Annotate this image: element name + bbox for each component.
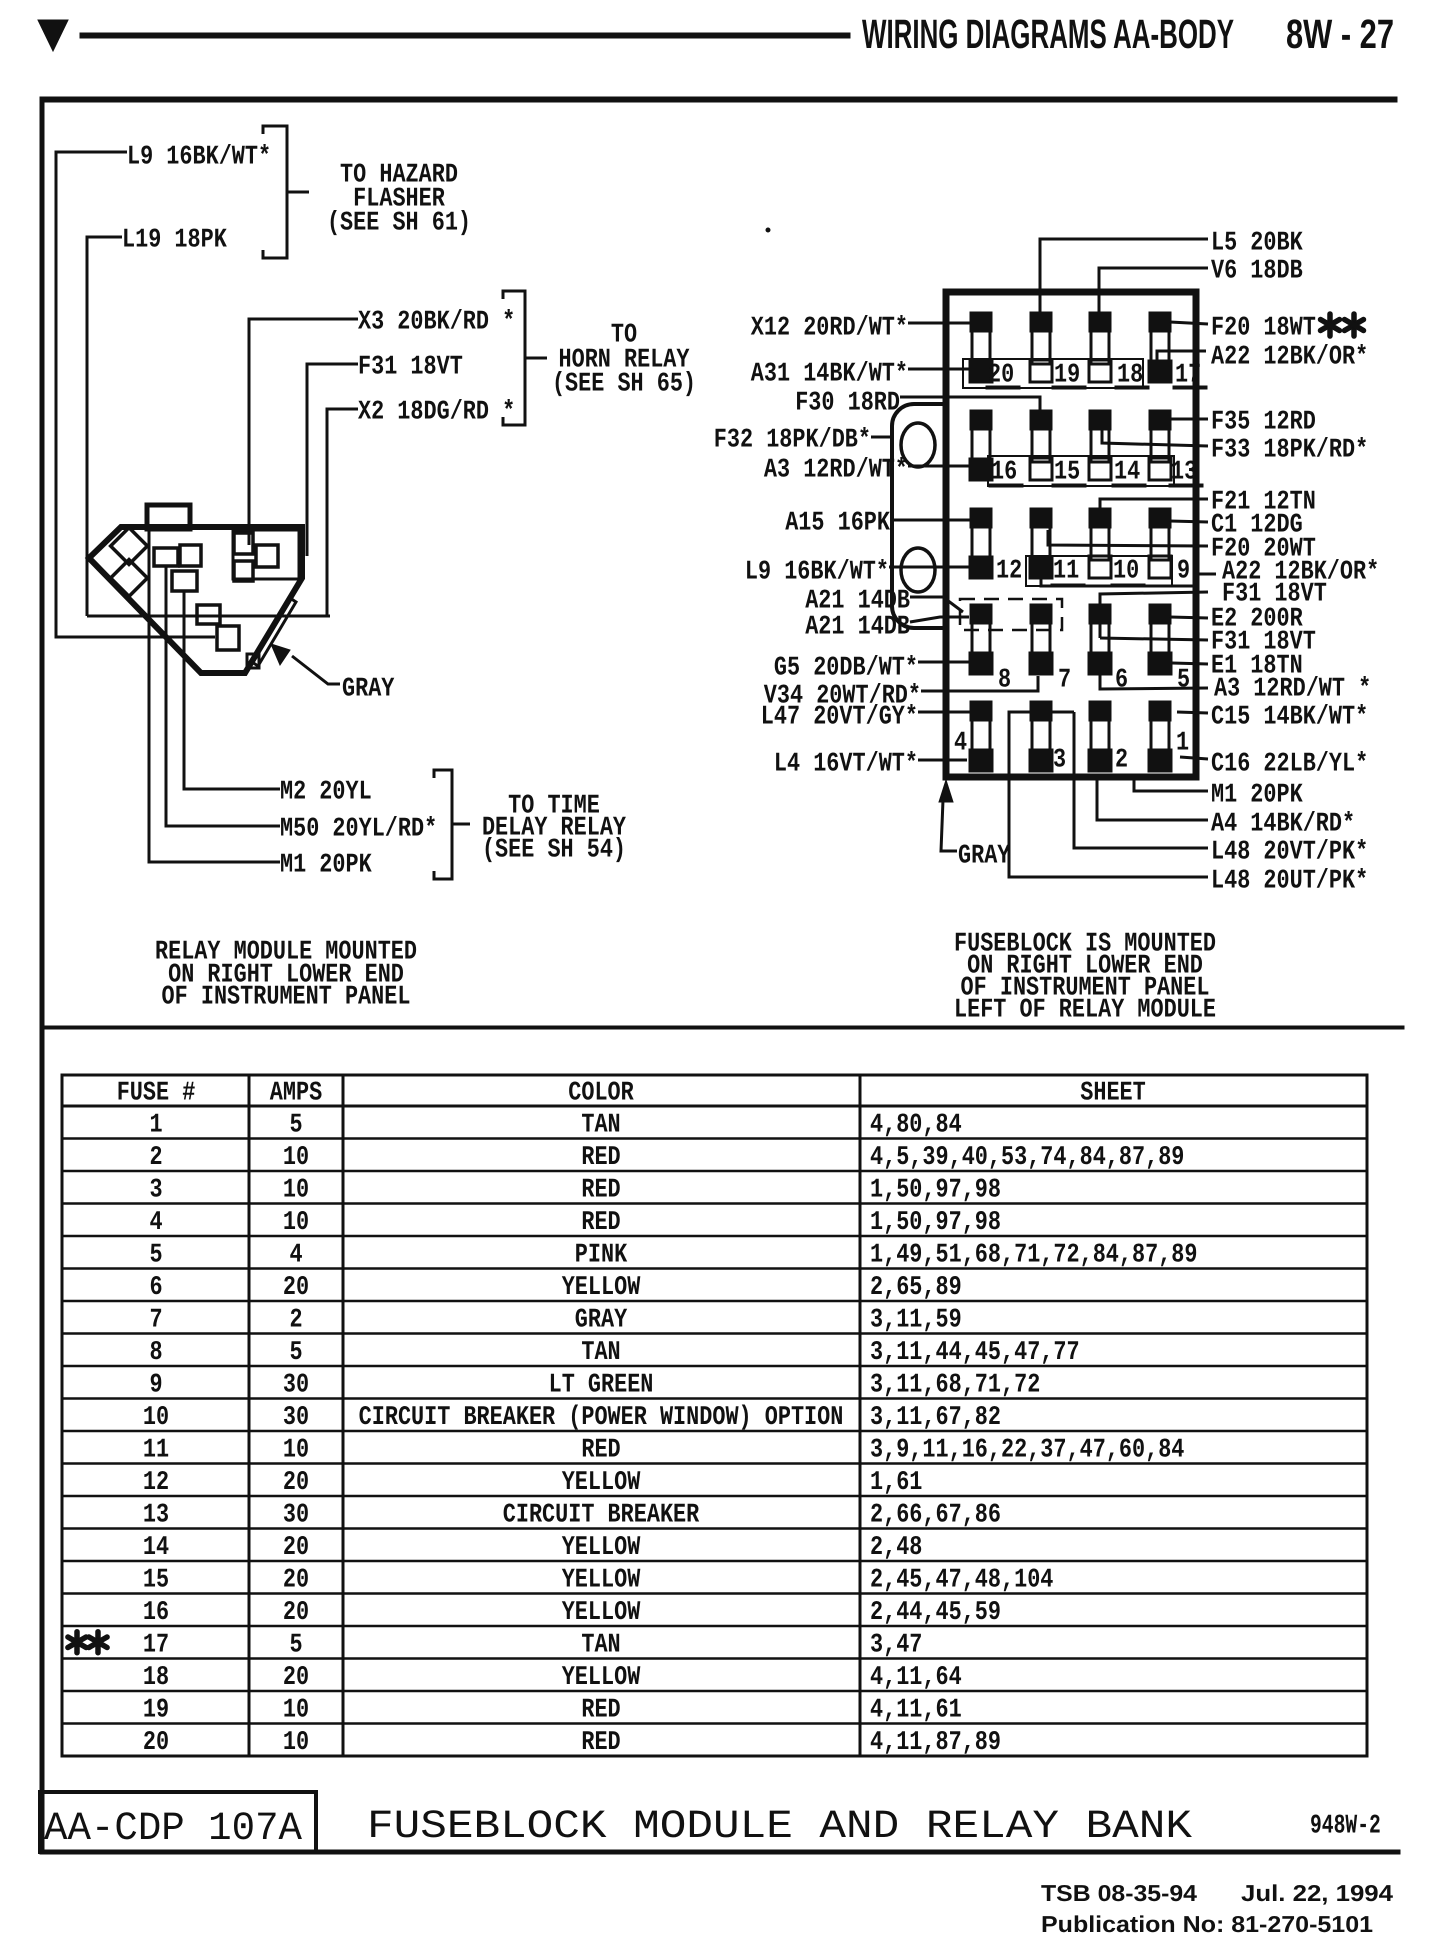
svg-text:RED: RED [581, 1143, 620, 1173]
svg-text:X12 20RD/WT*: X12 20RD/WT* [751, 313, 908, 343]
svg-text:6: 6 [149, 1273, 162, 1303]
svg-text:3,47: 3,47 [870, 1631, 922, 1661]
svg-text:3,11,68,71,72: 3,11,68,71,72 [870, 1371, 1040, 1401]
svg-text:6: 6 [1115, 665, 1128, 695]
svg-text:CIRCUIT BREAKER: CIRCUIT BREAKER [503, 1501, 700, 1531]
svg-text:10: 10 [1113, 556, 1139, 586]
svg-text:1,50,97,98: 1,50,97,98 [870, 1176, 1001, 1206]
svg-text:9: 9 [1177, 556, 1190, 586]
svg-text:1,61: 1,61 [870, 1468, 922, 1498]
svg-text:20: 20 [283, 1566, 309, 1596]
svg-text:13: 13 [143, 1501, 169, 1531]
svg-text:2: 2 [149, 1143, 162, 1173]
svg-text:F30 18RD: F30 18RD [795, 388, 900, 418]
svg-text:RED: RED [581, 1208, 620, 1238]
svg-text:2,48: 2,48 [870, 1533, 922, 1563]
svg-text:(SEE SH 65): (SEE SH 65) [552, 369, 696, 399]
svg-text:1: 1 [1176, 728, 1189, 758]
svg-text:M1 20PK: M1 20PK [280, 850, 372, 880]
svg-text:L48 20VT/PK*: L48 20VT/PK* [1211, 837, 1368, 867]
svg-text:10: 10 [283, 1436, 309, 1466]
svg-text:F31 18VT: F31 18VT [358, 352, 463, 382]
svg-text:Jul. 22, 1994: Jul. 22, 1994 [1241, 1880, 1393, 1906]
svg-text:YELLOW: YELLOW [562, 1566, 641, 1596]
svg-text:YELLOW: YELLOW [562, 1663, 641, 1693]
svg-text:A3 12RD/WT*: A3 12RD/WT* [764, 455, 908, 485]
svg-text:YELLOW: YELLOW [562, 1598, 641, 1628]
svg-text:L19 18PK: L19 18PK [122, 225, 227, 255]
svg-text:A21 14DB: A21 14DB [805, 612, 910, 642]
svg-text:4: 4 [954, 728, 967, 758]
svg-text:10: 10 [283, 1208, 309, 1238]
svg-text:10: 10 [283, 1728, 309, 1758]
svg-text:M50 20YL/RD*: M50 20YL/RD* [280, 814, 437, 844]
svg-text:L4 16VT/WT*: L4 16VT/WT* [774, 749, 918, 779]
svg-text:20: 20 [283, 1533, 309, 1563]
svg-text:Publication No: 81-270-5101: Publication No: 81-270-5101 [1041, 1911, 1373, 1937]
svg-text:YELLOW: YELLOW [562, 1273, 641, 1303]
svg-text:TAN: TAN [581, 1111, 620, 1141]
svg-text:FUSEBLOCK MODULE AND RELAY BAN: FUSEBLOCK MODULE AND RELAY BANK [367, 1805, 1192, 1850]
svg-text:1,49,51,68,71,72,84,87,89: 1,49,51,68,71,72,84,87,89 [870, 1241, 1198, 1271]
svg-text:17: 17 [143, 1631, 169, 1661]
svg-text:10: 10 [283, 1696, 309, 1726]
svg-text:5: 5 [149, 1241, 162, 1271]
svg-text:3,11,59: 3,11,59 [870, 1306, 962, 1336]
svg-text:L48 20UT/PK*: L48 20UT/PK* [1211, 866, 1368, 896]
svg-text:12: 12 [996, 556, 1022, 586]
svg-text:14: 14 [1114, 457, 1140, 487]
svg-text:4: 4 [289, 1241, 302, 1271]
svg-text:A15 16PK: A15 16PK [785, 508, 890, 538]
svg-text:9: 9 [149, 1371, 162, 1401]
svg-text:5: 5 [1177, 665, 1190, 695]
svg-text:8: 8 [149, 1338, 162, 1368]
svg-text:L9 16BK/WT*: L9 16BK/WT* [745, 557, 889, 587]
svg-text:GRAY: GRAY [342, 674, 395, 704]
svg-text:(SEE SH 54): (SEE SH 54) [482, 835, 626, 865]
svg-text:8W - 27: 8W - 27 [1286, 11, 1394, 57]
svg-text:2,65,89: 2,65,89 [870, 1273, 962, 1303]
svg-text:10: 10 [283, 1143, 309, 1173]
svg-text:19: 19 [143, 1696, 169, 1726]
svg-text:OF INSTRUMENT PANEL: OF INSTRUMENT PANEL [162, 982, 411, 1012]
svg-text:10: 10 [143, 1403, 169, 1433]
svg-text:L47 20VT/GY*: L47 20VT/GY* [761, 702, 918, 732]
svg-text:16: 16 [991, 457, 1017, 487]
svg-text:30: 30 [283, 1371, 309, 1401]
svg-text:12: 12 [143, 1468, 169, 1498]
svg-text:V6 18DB: V6 18DB [1211, 256, 1303, 286]
svg-text:F33 18PK/RD*: F33 18PK/RD* [1211, 435, 1368, 465]
svg-text:YELLOW: YELLOW [562, 1468, 641, 1498]
svg-text:A4 14BK/RD*: A4 14BK/RD* [1211, 809, 1355, 839]
svg-text:A31 14BK/WT*: A31 14BK/WT* [751, 359, 908, 389]
svg-text:F35 12RD: F35 12RD [1211, 407, 1316, 437]
svg-text:15: 15 [1054, 457, 1080, 487]
svg-text:A3 12RD/WT *: A3 12RD/WT * [1214, 674, 1371, 704]
svg-text:WIRING DIAGRAMS AA-BODY: WIRING DIAGRAMS AA-BODY [862, 11, 1234, 57]
svg-text:4,11,87,89: 4,11,87,89 [870, 1728, 1001, 1758]
svg-text:RED: RED [581, 1696, 620, 1726]
svg-text:1: 1 [149, 1111, 162, 1141]
svg-text:L9 16BK/WT*: L9 16BK/WT* [127, 142, 271, 172]
svg-text:1,50,97,98: 1,50,97,98 [870, 1208, 1001, 1238]
svg-text:A22 12BK/OR*: A22 12BK/OR* [1211, 342, 1368, 372]
svg-text:GRAY: GRAY [958, 841, 1011, 871]
svg-text:3,11,44,45,47,77: 3,11,44,45,47,77 [870, 1338, 1080, 1368]
svg-text:2: 2 [289, 1306, 302, 1336]
svg-text:20: 20 [143, 1728, 169, 1758]
svg-text:L5 20BK: L5 20BK [1211, 228, 1303, 258]
svg-text:FUSE #: FUSE # [117, 1078, 196, 1108]
svg-text:16: 16 [143, 1598, 169, 1628]
svg-text:30: 30 [283, 1403, 309, 1433]
svg-text:CIRCUIT BREAKER (POWER WINDOW): CIRCUIT BREAKER (POWER WINDOW) OPTION [359, 1403, 844, 1433]
svg-text:5: 5 [289, 1338, 302, 1368]
svg-text:20: 20 [283, 1663, 309, 1693]
svg-text:SHEET: SHEET [1080, 1078, 1146, 1108]
svg-text:C15 14BK/WT*: C15 14BK/WT* [1211, 702, 1368, 732]
svg-text:4,11,64: 4,11,64 [870, 1663, 962, 1693]
svg-text:3,11,67,82: 3,11,67,82 [870, 1403, 1001, 1433]
svg-text:30: 30 [283, 1501, 309, 1531]
svg-text:X3 20BK/RD *: X3 20BK/RD * [358, 307, 515, 337]
svg-text:F20 18WT: F20 18WT [1211, 313, 1316, 343]
svg-text:TAN: TAN [581, 1631, 620, 1661]
svg-text:5: 5 [289, 1111, 302, 1141]
svg-text:M1 20PK: M1 20PK [1211, 780, 1303, 810]
svg-text:PINK: PINK [575, 1241, 628, 1271]
svg-text:M2 20YL: M2 20YL [280, 777, 372, 807]
svg-text:X2 18DG/RD *: X2 18DG/RD * [358, 397, 515, 427]
svg-text:4,11,61: 4,11,61 [870, 1696, 962, 1726]
svg-text:2,44,45,59: 2,44,45,59 [870, 1598, 1001, 1628]
svg-text:AA-CDP 107A: AA-CDP 107A [44, 1807, 302, 1852]
svg-text:11: 11 [1053, 556, 1079, 586]
svg-text:3: 3 [1053, 745, 1066, 775]
svg-text:RED: RED [581, 1728, 620, 1758]
svg-text:2: 2 [1115, 745, 1128, 775]
svg-text:11: 11 [143, 1436, 169, 1466]
svg-text:RED: RED [581, 1176, 620, 1206]
svg-text:TAN: TAN [581, 1338, 620, 1368]
svg-text:C16 22LB/YL*: C16 22LB/YL* [1211, 749, 1368, 779]
svg-text:20: 20 [283, 1598, 309, 1628]
svg-text:20: 20 [283, 1468, 309, 1498]
svg-text:14: 14 [143, 1533, 169, 1563]
svg-text:TSB 08-35-94: TSB 08-35-94 [1041, 1880, 1197, 1906]
svg-text:5: 5 [289, 1631, 302, 1661]
svg-text:10: 10 [283, 1176, 309, 1206]
svg-text:3,9,11,16,22,37,47,60,84: 3,9,11,16,22,37,47,60,84 [870, 1436, 1184, 1466]
svg-text:2,66,67,86: 2,66,67,86 [870, 1501, 1001, 1531]
svg-text:20: 20 [283, 1273, 309, 1303]
svg-text:7: 7 [1058, 665, 1071, 695]
svg-text:AMPS: AMPS [270, 1078, 322, 1108]
svg-text:GRAY: GRAY [575, 1306, 628, 1336]
svg-text:4,80,84: 4,80,84 [870, 1111, 962, 1141]
svg-text:13: 13 [1171, 457, 1197, 487]
svg-text:3: 3 [149, 1176, 162, 1206]
svg-text:4,5,39,40,53,74,84,87,89: 4,5,39,40,53,74,84,87,89 [870, 1143, 1184, 1173]
svg-text:15: 15 [143, 1566, 169, 1596]
svg-text:7: 7 [149, 1306, 162, 1336]
svg-text:948W-2: 948W-2 [1310, 1811, 1381, 1841]
svg-text:G5 20DB/WT*: G5 20DB/WT* [774, 653, 918, 683]
svg-text:4: 4 [149, 1208, 162, 1238]
svg-text:F32 18PK/DB*: F32 18PK/DB* [714, 425, 871, 455]
svg-text:2,45,47,48,104: 2,45,47,48,104 [870, 1566, 1053, 1596]
svg-text:18: 18 [143, 1663, 169, 1693]
svg-text:LT GREEN: LT GREEN [549, 1371, 654, 1401]
svg-text:YELLOW: YELLOW [562, 1533, 641, 1563]
svg-text:COLOR: COLOR [568, 1078, 634, 1108]
svg-text:(SEE SH 61): (SEE SH 61) [327, 208, 471, 238]
svg-text:RED: RED [581, 1436, 620, 1466]
svg-text:LEFT OF RELAY MODULE: LEFT OF RELAY MODULE [954, 995, 1216, 1025]
